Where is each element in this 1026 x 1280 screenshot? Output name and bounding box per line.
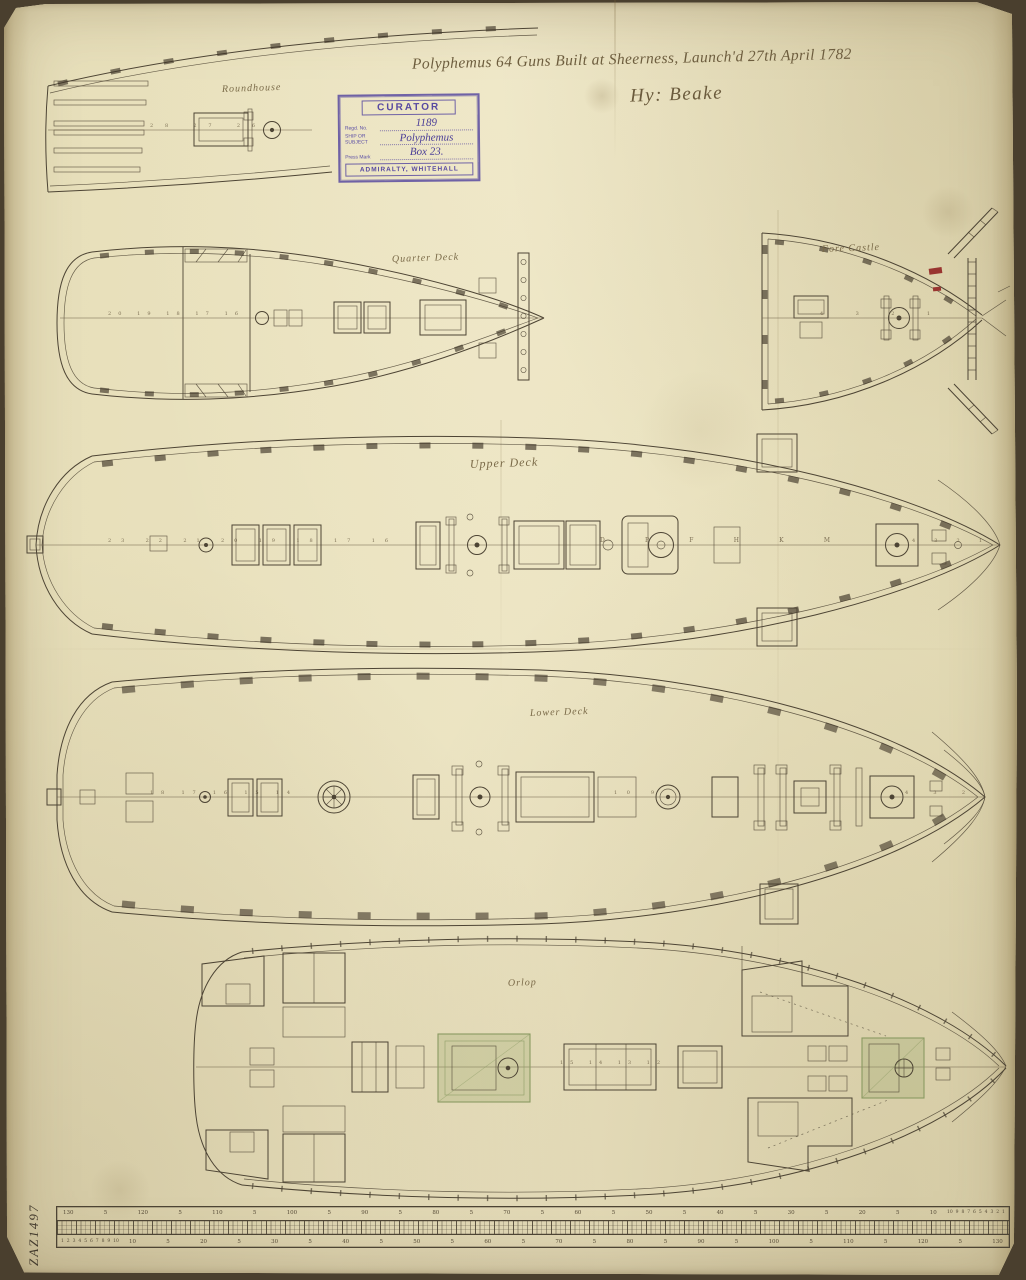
hatch <box>479 278 496 293</box>
scale-number: 5 <box>896 1210 900 1216</box>
scale-digit: 6 <box>90 1239 93 1244</box>
scale-number: 5 <box>809 1239 813 1245</box>
scale-digit: 9 <box>107 1239 110 1244</box>
scale-number: 50 <box>413 1239 420 1245</box>
scale-number: 5 <box>237 1239 241 1245</box>
scale-number: 130 <box>63 1210 74 1216</box>
scale-number: 120 <box>918 1239 929 1245</box>
station-numbers: 28 27 26 <box>150 123 255 129</box>
scale-digit: 4 <box>78 1239 81 1244</box>
companion-hatch <box>194 113 248 146</box>
scale-number: 5 <box>470 1210 474 1216</box>
galley-fittings <box>794 296 828 338</box>
beakhead-bulkhead <box>968 258 976 380</box>
scale-digit: 2 <box>996 1210 999 1215</box>
scale-number: 40 <box>342 1239 349 1245</box>
hatch <box>932 553 946 564</box>
scale-number: 5 <box>825 1210 829 1216</box>
scale-digit: 7 <box>967 1210 970 1215</box>
scale-number: 5 <box>735 1239 739 1245</box>
scale-number: 30 <box>788 1210 795 1216</box>
scale-number: 5 <box>308 1239 312 1245</box>
scale-digit: 3 <box>73 1239 76 1244</box>
scale-number: 5 <box>451 1239 455 1245</box>
red-annotation-mark <box>929 267 943 275</box>
scale-number: 60 <box>574 1210 581 1216</box>
scale-number: 60 <box>484 1239 491 1245</box>
station-numbers: 15 14 13 12 <box>560 1060 660 1066</box>
after-hatchways <box>228 779 282 816</box>
quarter-deck-plan: 20 19 18 17 16 <box>57 247 544 400</box>
hatch <box>936 1068 950 1080</box>
scale-top-numbers: 1305120511051005905805705605505405305205… <box>57 1210 943 1216</box>
scale-number: 5 <box>884 1239 888 1245</box>
scale-right-subdivisions: 10987654321 <box>943 1210 1009 1215</box>
quarter-deck-label: Quarter Deck <box>392 252 460 265</box>
upper-deck-plan: 23 22 21 20 19 18 17 16 D P F H K M 4 3 … <box>27 434 1000 654</box>
ladderway-hatching <box>185 249 247 397</box>
orlop-plan: 15 14 13 12 Orlop <box>194 939 1006 1198</box>
scale-digit: 3 <box>990 1210 993 1215</box>
scale-number: 120 <box>138 1210 149 1216</box>
scale-number: 20 <box>859 1210 866 1216</box>
station-numbers: 20 19 18 17 16 <box>108 311 238 317</box>
scale-number: 70 <box>555 1239 562 1245</box>
scale-number: 5 <box>253 1210 257 1216</box>
scale-bottom-numbers: 1052053054055056057058059051005110512051… <box>123 1239 1009 1245</box>
scale-number: 5 <box>522 1239 526 1245</box>
scale-number: 100 <box>769 1239 780 1245</box>
scale-number: 130 <box>992 1239 1003 1245</box>
upper-deck-label: Upper Deck <box>470 455 539 471</box>
scale-number: 40 <box>717 1210 724 1216</box>
hatch <box>250 1048 274 1065</box>
scale-digit: 5 <box>979 1210 982 1215</box>
compartment-letters: D P F H K M <box>600 537 830 544</box>
fore-magazine-green <box>862 1038 924 1098</box>
scale-digit: 6 <box>973 1210 976 1215</box>
forecastle-label: Fore Castle <box>821 242 880 255</box>
companion <box>420 300 466 335</box>
stern-slats <box>54 81 148 172</box>
aft-magazine-green <box>438 1034 530 1102</box>
scale-number: 80 <box>432 1210 439 1216</box>
scale-bar-bottom-row: 12345678910 1052053054055056057058059051… <box>57 1236 1009 1247</box>
scale-number: 90 <box>698 1239 705 1245</box>
scale-number: 5 <box>104 1210 108 1216</box>
scale-number: 5 <box>379 1239 383 1245</box>
scale-number: 30 <box>271 1239 278 1245</box>
red-annotation-mark <box>933 287 941 292</box>
scale-digit: 8 <box>102 1239 105 1244</box>
roundhouse-label: Roundhouse <box>221 82 282 95</box>
scale-digit: 1 <box>61 1239 64 1244</box>
hatch <box>930 806 942 816</box>
scale-left-subdivisions: 12345678910 <box>57 1239 123 1244</box>
scale-digit: 10 <box>113 1239 119 1244</box>
scale-digit: 4 <box>985 1210 988 1215</box>
scale-number: 5 <box>958 1239 962 1245</box>
scale-number: 10 <box>129 1239 136 1245</box>
scale-number: 10 <box>930 1210 937 1216</box>
deck-plans-drawing: 28 27 26 Roundhouse <box>0 0 1026 1280</box>
station-numbers: 10 9 <box>614 790 654 796</box>
scale-number: 5 <box>612 1210 616 1216</box>
skylights <box>334 302 390 333</box>
scale-digit: 7 <box>96 1239 99 1244</box>
scale-number: 5 <box>178 1210 182 1216</box>
scale-bar: 1305120511051005905805705605505405305205… <box>56 1206 1010 1248</box>
scale-digit: 2 <box>67 1239 70 1244</box>
scale-number: 80 <box>626 1239 633 1245</box>
hatch <box>250 1070 274 1087</box>
scale-digit: 10 <box>947 1210 953 1215</box>
stern-hatch-pair <box>126 773 153 822</box>
forecastle-plan: 4 3 2 1 Fore Castle <box>762 208 1010 434</box>
scale-number: 90 <box>361 1210 368 1216</box>
scale-digit: 8 <box>961 1210 964 1215</box>
lower-deck-plan: 18 17 16 15 14 10 9 4 3 2 Lower Deck <box>47 668 985 926</box>
scale-bar-top-row: 1305120511051005905805705605505405305205… <box>57 1207 1009 1218</box>
scale-digit: 9 <box>956 1210 959 1215</box>
hatch <box>936 1048 950 1060</box>
stern-post-block <box>27 536 43 553</box>
scale-number: 5 <box>327 1210 331 1216</box>
scale-number: 70 <box>503 1210 510 1216</box>
station-numbers: 4 3 2 1 <box>820 311 930 317</box>
scale-digit: 5 <box>84 1239 87 1244</box>
station-numbers: 18 17 16 15 14 <box>150 790 290 796</box>
scale-number: 5 <box>541 1210 545 1216</box>
cathead-starboard <box>948 384 998 434</box>
scale-number: 50 <box>646 1210 653 1216</box>
station-numbers: 4 3 2 1 <box>912 538 982 544</box>
orlop-label: Orlop <box>508 977 537 989</box>
scale-bar-grid <box>57 1220 1009 1235</box>
after-capstan <box>318 781 350 813</box>
lower-deck-label: Lower Deck <box>529 706 589 719</box>
fore-bitts-cluster <box>754 765 862 830</box>
cathead-port <box>948 208 998 258</box>
after-hatchway <box>416 522 440 569</box>
scale-number: 5 <box>399 1210 403 1216</box>
gangway-notch <box>760 884 798 924</box>
scale-number: 5 <box>754 1210 758 1216</box>
scale-number: 5 <box>664 1239 668 1245</box>
hatch <box>479 343 496 358</box>
scale-number: 5 <box>683 1210 687 1216</box>
aft-platform-rooms <box>202 953 345 1182</box>
scale-number: 5 <box>166 1239 170 1245</box>
roundhouse-plan: 28 27 26 Roundhouse <box>46 27 538 192</box>
gangway-strip <box>518 253 529 380</box>
scale-digit: 1 <box>1002 1210 1005 1215</box>
scale-number: 110 <box>843 1239 854 1245</box>
bow-head-rails <box>982 286 1010 336</box>
scale-number: 100 <box>287 1210 298 1216</box>
scale-number: 110 <box>212 1210 223 1216</box>
scale-number: 5 <box>593 1239 597 1245</box>
scale-number: 20 <box>200 1239 207 1245</box>
scanned-ship-plan: Polyphemus 64 Guns Built at Sheerness, L… <box>0 0 1026 1280</box>
